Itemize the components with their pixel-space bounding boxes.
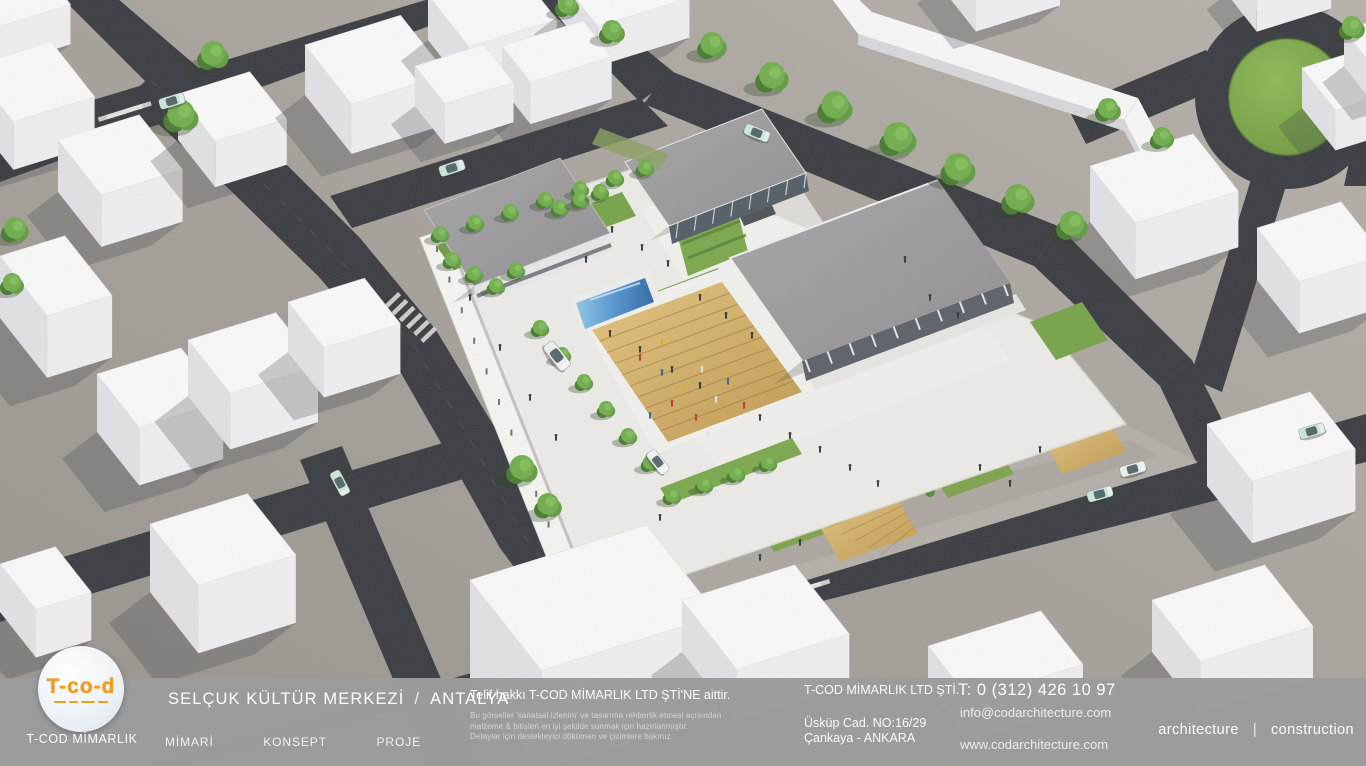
title-separator: / (414, 690, 420, 708)
service-divider: | (1253, 722, 1257, 738)
services-tagline: architecture|construction (1158, 722, 1354, 738)
company-logo: T-co-d (38, 646, 124, 732)
project-title: SELÇUK KÜLTÜR MERKEZİ/ANTALYA (168, 690, 509, 709)
category-tabs: MİMARİ KONSEPT PROJE (165, 735, 421, 749)
company-address-block: T-COD MİMARLIK LTD ŞTİ. Üsküp Cad. NO:16… (804, 683, 959, 746)
tab-mimari[interactable]: MİMARİ (165, 735, 214, 749)
company-name-label: T-COD MİMARLIK (12, 732, 152, 746)
website-url[interactable]: www.codarchitecture.com (960, 737, 1108, 752)
logo-wordmark: T-co-d (47, 675, 116, 699)
tab-proje[interactable]: PROJE (376, 735, 421, 749)
service-architecture: architecture (1158, 722, 1239, 738)
copyright-disclaimer: Bu görseller 'sanatsal izlenim' ve tasar… (470, 711, 722, 743)
email-address[interactable]: info@codarchitecture.com (960, 705, 1111, 720)
disclaimer-line: Bu görseller 'sanatsal izlenim' ve tasar… (470, 711, 722, 722)
service-construction: construction (1271, 722, 1354, 738)
company-legal-name: T-COD MİMARLIK LTD ŞTİ. (804, 683, 959, 698)
presentation-board: T-co-d T-COD MİMARLIK SELÇUK KÜLTÜR MERK… (0, 0, 1366, 766)
project-name: SELÇUK KÜLTÜR MERKEZİ (168, 690, 404, 708)
company-address-street: Üsküp Cad. NO:16/29 (804, 716, 959, 731)
copyright-line: Telif hakkı T-COD MİMARLIK LTD ŞTİ'NE ai… (470, 688, 730, 702)
phone-number: T: 0 (312) 426 10 97 (958, 681, 1116, 700)
disclaimer-line: malzeme & bitişleri en iyi şekilde sunma… (470, 722, 722, 733)
disclaimer-line: Detaylar için destekleyici döküman ve çi… (470, 732, 722, 743)
footer-bar: T-co-d T-COD MİMARLIK SELÇUK KÜLTÜR MERK… (0, 678, 1366, 766)
texture-overlay (0, 0, 1366, 766)
tab-konsept[interactable]: KONSEPT (263, 735, 327, 749)
architectural-render (0, 0, 1366, 766)
logo-fineprint-decoration (54, 701, 108, 703)
company-address-city: Çankaya - ANKARA (804, 731, 959, 746)
